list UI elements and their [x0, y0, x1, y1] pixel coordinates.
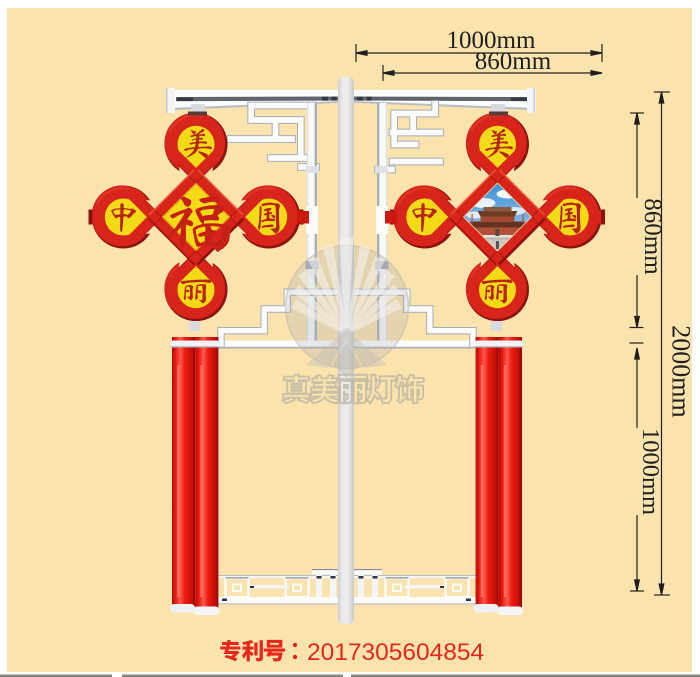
svg-text:2017305604854: 2017305604854 — [307, 639, 484, 666]
svg-text:1000mm: 1000mm — [637, 428, 664, 515]
svg-text:860mm: 860mm — [475, 48, 552, 75]
svg-text:2000mm: 2000mm — [667, 325, 696, 417]
